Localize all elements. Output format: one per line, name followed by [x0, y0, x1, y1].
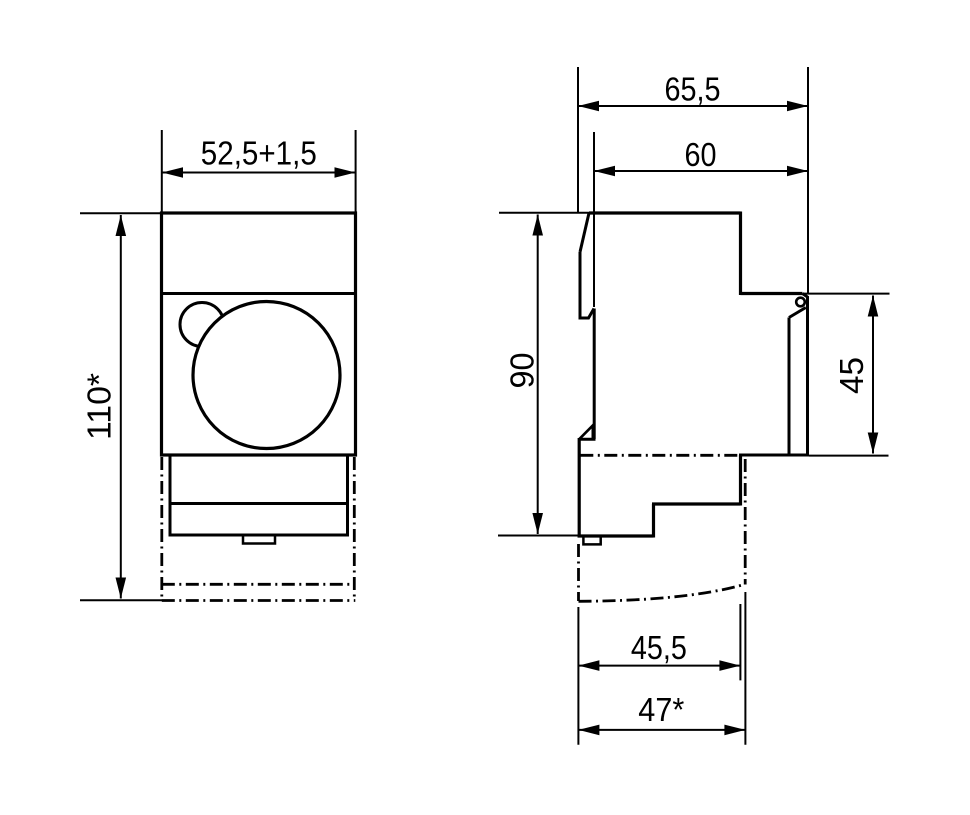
svg-text:45,5: 45,5 — [631, 629, 687, 666]
svg-text:65,5: 65,5 — [665, 71, 721, 108]
svg-text:110*: 110* — [81, 373, 118, 440]
svg-text:52,5+1,5: 52,5+1,5 — [201, 135, 317, 172]
svg-text:90: 90 — [504, 353, 541, 389]
svg-text:45: 45 — [833, 357, 870, 394]
svg-text:47*: 47* — [638, 691, 684, 728]
svg-text:60: 60 — [685, 136, 717, 173]
